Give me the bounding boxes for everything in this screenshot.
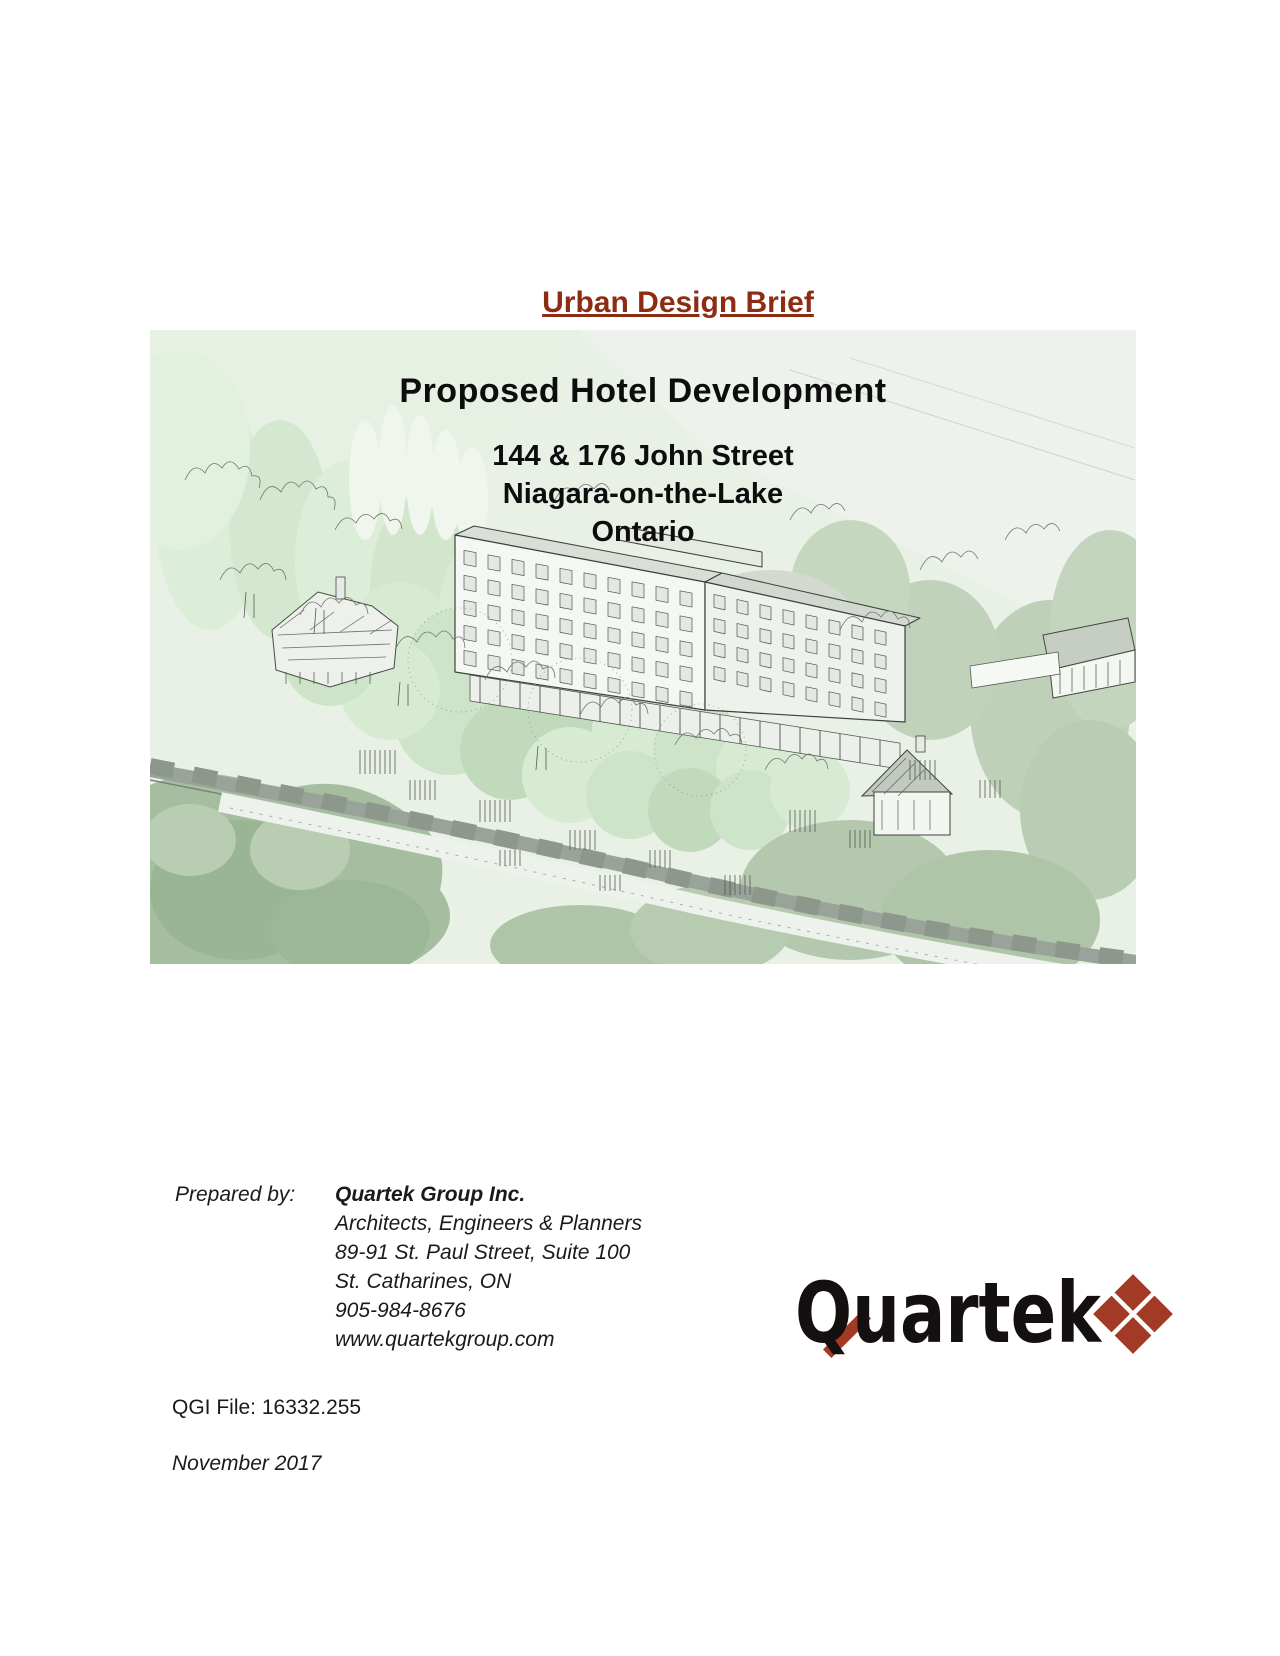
- company-detail: St. Catharines, ON: [335, 1267, 642, 1296]
- company-name: Quartek Group Inc.: [335, 1180, 642, 1209]
- address-line: 144 & 176 John Street: [150, 437, 1136, 475]
- address-line: Ontario: [150, 513, 1136, 551]
- company-detail: Architects, Engineers & Planners: [335, 1209, 642, 1238]
- quartek-logo-graphic: Quartek: [795, 1268, 1175, 1360]
- address-line: Niagara-on-the-Lake: [150, 475, 1136, 513]
- company-detail: 89-91 St. Paul Street, Suite 100: [335, 1238, 642, 1267]
- cover-illustration: Proposed Hotel Development 144 & 176 Joh…: [150, 330, 1136, 964]
- prepared-by-block: Prepared by: Quartek Group Inc. Architec…: [175, 1180, 642, 1354]
- company-website: www.quartekgroup.com: [335, 1325, 642, 1354]
- prepared-by-label: Prepared by:: [175, 1180, 335, 1354]
- cover-text-block: Proposed Hotel Development 144 & 176 Joh…: [150, 372, 1136, 551]
- page-title: Urban Design Brief: [0, 286, 1280, 320]
- cover-headline: Proposed Hotel Development: [150, 372, 1136, 411]
- quartek-diamond-icon: [1093, 1274, 1173, 1354]
- quartek-wordmark: Quartek: [795, 1268, 1103, 1360]
- cover-address-block: 144 & 176 John Street Niagara-on-the-Lak…: [150, 437, 1136, 551]
- quartek-logo: Quartek: [795, 1268, 1175, 1360]
- firm-info: Quartek Group Inc. Architects, Engineers…: [335, 1180, 642, 1354]
- document-date: November 2017: [172, 1452, 321, 1476]
- company-detail: 905-984-8676: [335, 1296, 642, 1325]
- file-number: QGI File: 16332.255: [172, 1396, 361, 1420]
